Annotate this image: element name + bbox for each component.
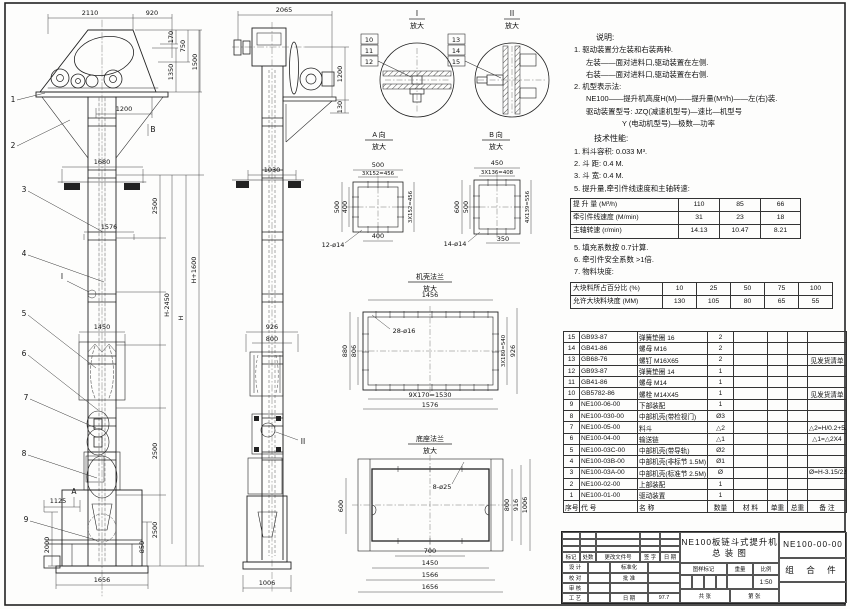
part-name: 中部机壳(带导轨) bbox=[638, 444, 708, 455]
quantity: △2 bbox=[708, 422, 734, 433]
row-no: 9 bbox=[564, 399, 580, 410]
scale-header: 比例 bbox=[753, 563, 779, 575]
title-block: 标记 处数 更改文件号 签 字 日 期 设 计 标准化 校 对 批 准 审 核 … bbox=[561, 531, 846, 604]
quantity: Ø bbox=[708, 467, 734, 478]
rev-header: 日 期 bbox=[660, 552, 680, 562]
role-label: 标准化 bbox=[610, 562, 648, 572]
dim-label: 500 bbox=[372, 161, 384, 169]
part-code: NE100-02-00 bbox=[580, 478, 638, 489]
spec-value: 31 bbox=[679, 212, 720, 225]
material bbox=[734, 478, 768, 489]
balloon-number: 8 bbox=[22, 449, 27, 458]
part-name: 中部机壳(带检视门) bbox=[638, 411, 708, 422]
drawing-title: NE100板链斗式提升机 总 装 图 bbox=[680, 532, 779, 563]
spec-row-label: 牵引件线速度 (M/min) bbox=[571, 212, 679, 225]
rev-header: 签 字 bbox=[640, 552, 660, 562]
spec-row-label: 主轴转速 (r/min) bbox=[571, 225, 679, 238]
dim-label: 1030 bbox=[264, 166, 281, 174]
table-row: 3NE100-03A-00中部机壳(标准节 2.5M)ØØ=H-3.15/2.5 bbox=[564, 467, 847, 478]
dim-label: 500 bbox=[333, 201, 341, 213]
part-name: 弹簧垫圈 16 bbox=[638, 332, 708, 343]
part-code: NE100-06-00 bbox=[580, 399, 638, 410]
drawing-title-line2: 总 装 图 bbox=[712, 548, 747, 559]
table-row: 2NE100-02-00上部装配1 bbox=[564, 478, 847, 489]
role-label: 校 对 bbox=[562, 573, 588, 583]
dim-label: 1576 bbox=[422, 401, 439, 409]
callout-number: 10 bbox=[365, 36, 373, 44]
dim-label: 1450 bbox=[422, 559, 439, 567]
spec-line: 1. 料斗容积: 0.033 M³. bbox=[574, 146, 848, 158]
part-name: 螺钉 M16X65 bbox=[638, 354, 708, 365]
rev-header: 更改文件号 bbox=[596, 552, 640, 562]
unit-weight bbox=[768, 343, 788, 354]
table-row: 9NE100-06-00下部装配1 bbox=[564, 399, 847, 410]
dim-label: 1576 bbox=[101, 223, 118, 231]
spec-value: 50 bbox=[731, 282, 765, 295]
total-weight bbox=[788, 478, 808, 489]
balloon-number: 2 bbox=[11, 141, 16, 150]
quantity: 2 bbox=[708, 354, 734, 365]
part-name: 螺母 M16 bbox=[638, 343, 708, 354]
total-weight bbox=[788, 343, 808, 354]
material bbox=[734, 377, 768, 388]
dim-label: 800 bbox=[266, 335, 278, 343]
col-header: 总重 bbox=[788, 501, 808, 512]
quantity: Ø2 bbox=[708, 444, 734, 455]
total-weight bbox=[788, 444, 808, 455]
row-no: 6 bbox=[564, 433, 580, 444]
unit-weight bbox=[768, 377, 788, 388]
mark-header: 图样标记 bbox=[680, 563, 727, 575]
row-no: 4 bbox=[564, 456, 580, 467]
dim-label: 1566 bbox=[422, 571, 439, 579]
role-label: 批 准 bbox=[610, 573, 648, 583]
dim-label: 1656 bbox=[94, 576, 111, 584]
unit-weight bbox=[768, 478, 788, 489]
specs-heading: 技术性能: bbox=[594, 133, 848, 145]
part-code: GB5782-86 bbox=[580, 388, 638, 399]
balloon-number: 1 bbox=[11, 95, 16, 104]
dim-label: 2500 bbox=[151, 443, 159, 460]
table-row: 14GB41-86螺母 M162 bbox=[564, 343, 847, 354]
part-code: GB93-87 bbox=[580, 332, 638, 343]
sheet-total: 共 张 bbox=[680, 589, 730, 603]
spec-value: 85 bbox=[720, 198, 761, 211]
note-line: NE100——提升机高度H(M)——提升量(M³/h)——左(右)装. bbox=[586, 93, 848, 105]
part-code: GB93-87 bbox=[580, 365, 638, 376]
remark bbox=[808, 343, 847, 354]
balloon-number: 9 bbox=[24, 515, 29, 524]
detail-title: 机壳法兰 bbox=[416, 272, 444, 281]
unit-weight bbox=[768, 444, 788, 455]
dim-label: H+1600 bbox=[190, 257, 198, 284]
parts-table: 15GB93-87弹簧垫圈 16214GB41-86螺母 M16213GB68-… bbox=[563, 331, 847, 513]
quantity: 1 bbox=[708, 399, 734, 410]
spec-line: 5. 填充系数按 0.7计算. bbox=[574, 242, 848, 254]
detail-I: I 放大 10 11 12 bbox=[361, 9, 454, 117]
dim-label: 3X180=540 bbox=[501, 334, 507, 367]
table-row: 12GB93-87弹簧垫圈 141 bbox=[564, 365, 847, 376]
spec-value: 65 bbox=[765, 295, 799, 308]
material bbox=[734, 365, 768, 376]
dim-label: 2110 bbox=[82, 9, 99, 17]
row-no: 12 bbox=[564, 365, 580, 376]
mounting-pad bbox=[124, 183, 140, 190]
row-no: 2 bbox=[564, 478, 580, 489]
total-weight bbox=[788, 399, 808, 410]
table-row: 大块料所占百分比 (%)10255075100 bbox=[571, 282, 833, 295]
dim-label: 700 bbox=[424, 547, 436, 555]
unit-weight bbox=[768, 467, 788, 478]
unit-weight bbox=[768, 422, 788, 433]
dim-label: 1500 bbox=[191, 54, 199, 71]
part-name: 驱动装置 bbox=[638, 490, 708, 501]
front-dimension-labels: 2110 920 170 750 1350 1500 1200 1680 157… bbox=[43, 9, 199, 584]
unit-weight bbox=[768, 365, 788, 376]
detail-subtitle: 放大 bbox=[489, 142, 503, 151]
rev-header: 处数 bbox=[580, 552, 596, 562]
table-row: 15GB93-87弹簧垫圈 162 bbox=[564, 332, 847, 343]
detail-title: A 向 bbox=[372, 130, 385, 139]
remark: Ø=H-3.15/2.5 bbox=[808, 467, 847, 478]
parts-list: 15GB93-87弹簧垫圈 16214GB41-86螺母 M16213GB68-… bbox=[563, 331, 846, 513]
detail-title: I bbox=[416, 9, 418, 18]
part-name: 弹簧垫圈 14 bbox=[638, 365, 708, 376]
unit-weight bbox=[768, 332, 788, 343]
row-no: 13 bbox=[564, 354, 580, 365]
balloon-leaders bbox=[17, 93, 104, 540]
table-row: 牵引件线速度 (M/min)312318 bbox=[571, 212, 801, 225]
drawing-title-line1: NE100板链斗式提升机 bbox=[681, 537, 777, 548]
dim-label: H-2450 bbox=[163, 293, 171, 317]
spec-value: 66 bbox=[761, 198, 801, 211]
dim-label: 400 bbox=[341, 201, 349, 213]
unit-weight bbox=[768, 399, 788, 410]
dim-label: 9X170=1530 bbox=[409, 391, 452, 399]
note-line: 2. 机型表示法: bbox=[574, 81, 848, 93]
material bbox=[734, 411, 768, 422]
dim-label: 3X136=408 bbox=[481, 170, 514, 176]
dim-label: 130 bbox=[336, 101, 344, 113]
spec-line: 5. 提升量,牵引件线速度和主轴转速: bbox=[574, 183, 848, 195]
drawing-number: NE100-00-00 bbox=[779, 532, 847, 558]
table-row: 5NE100-03C-00中部机壳(带导轨)Ø2 bbox=[564, 444, 847, 455]
dim-label: 3X152=456 bbox=[362, 171, 395, 177]
col-header: 数量 bbox=[708, 501, 734, 512]
material bbox=[734, 467, 768, 478]
dim-label: 170 bbox=[167, 31, 175, 43]
part-name: 中部机壳(非标节 1.5M) bbox=[638, 456, 708, 467]
spec-row-label: 允许大块料块度 (MM) bbox=[571, 295, 663, 308]
notes-heading: 说明: bbox=[596, 32, 848, 44]
table-row: 13GB68-76螺钉 M16X652见发货清单 bbox=[564, 354, 847, 365]
table-row: 4NE100-03B-00中部机壳(非标节 1.5M)Ø1 bbox=[564, 456, 847, 467]
callout-number: 11 bbox=[365, 47, 373, 55]
col-header: 代 号 bbox=[580, 501, 638, 512]
table-row: 8NE100-030-00中部机壳(带检视门)Ø3 bbox=[564, 411, 847, 422]
dim-label: 500 bbox=[462, 201, 470, 213]
capacity-table: 提 升 量 (M³/h)1108566牵引件线速度 (M/min)312318主… bbox=[570, 198, 801, 239]
spec-row-label: 大块料所占百分比 (%) bbox=[571, 282, 663, 295]
engineering-drawing-page: 2110 920 170 750 1350 1500 1200 1680 157… bbox=[0, 0, 850, 609]
row-no: 7 bbox=[564, 422, 580, 433]
part-name: 输送链 bbox=[638, 433, 708, 444]
quantity: △1 bbox=[708, 433, 734, 444]
rev-header: 标记 bbox=[562, 552, 580, 562]
col-header: 材 料 bbox=[734, 501, 768, 512]
balloon-number: 5 bbox=[22, 309, 27, 318]
detail-title: II bbox=[510, 9, 514, 18]
col-header: 名 称 bbox=[638, 501, 708, 512]
quantity: 1 bbox=[708, 365, 734, 376]
title-block-revision-area: 标记 处数 更改文件号 签 字 日 期 设 计 标准化 校 对 批 准 审 核 … bbox=[562, 532, 680, 603]
quantity: Ø3 bbox=[708, 411, 734, 422]
note-line: 1. 驱动装置分左装和右装两种. bbox=[574, 44, 848, 56]
quantity: 2 bbox=[708, 332, 734, 343]
table-row: 11GB41-86螺母 M141 bbox=[564, 377, 847, 388]
dim-label: 1006 bbox=[521, 497, 529, 514]
dim-label: 3X152=456 bbox=[408, 190, 414, 223]
part-code: NE100-05-00 bbox=[580, 422, 638, 433]
quantity: Ø1 bbox=[708, 456, 734, 467]
row-no: 11 bbox=[564, 377, 580, 388]
dim-label: 450 bbox=[491, 159, 503, 167]
total-weight bbox=[788, 388, 808, 399]
dim-label: 880 bbox=[341, 345, 349, 357]
detail-subtitle: 放大 bbox=[505, 21, 519, 30]
row-no: 1 bbox=[564, 490, 580, 501]
title-block-right: NE100-00-00 组 合 件 bbox=[779, 532, 847, 603]
dim-label: 2500 bbox=[151, 198, 159, 215]
remark bbox=[808, 365, 847, 376]
view-A-detail: A 向 放大 500 3X152=456 500 400 3X152=456 4… bbox=[322, 130, 414, 249]
spec-line: 3. 斗 宽: 0.4 M. bbox=[574, 170, 848, 182]
spec-value: 80 bbox=[731, 295, 765, 308]
material bbox=[734, 444, 768, 455]
spec-value: 14.13 bbox=[679, 225, 720, 238]
table-row: 主轴转速 (r/min)14.1310.478.21 bbox=[571, 225, 801, 238]
dim-label: 1200 bbox=[116, 105, 133, 113]
total-weight bbox=[788, 456, 808, 467]
row-no: 5 bbox=[564, 444, 580, 455]
row-no: 10 bbox=[564, 388, 580, 399]
dim-label: 2000 bbox=[43, 537, 51, 554]
note-line: Y (电动机型号)—极数—功率 bbox=[622, 118, 848, 130]
material bbox=[734, 456, 768, 467]
total-weight bbox=[788, 422, 808, 433]
drive-housing bbox=[71, 31, 138, 81]
dim-label: H bbox=[177, 315, 185, 320]
dim-label: 1450 bbox=[94, 323, 111, 331]
spec-value: 10.47 bbox=[720, 225, 761, 238]
dim-label: 1680 bbox=[94, 158, 111, 166]
detail-II: II 放大 13 14 15 bbox=[448, 9, 549, 117]
callout-number: 12 bbox=[365, 58, 373, 66]
detail-subtitle: 放大 bbox=[410, 21, 424, 30]
part-code: GB68-76 bbox=[580, 354, 638, 365]
dim-label: 1200 bbox=[336, 66, 344, 83]
spec-value: 100 bbox=[799, 282, 833, 295]
col-header: 序号 bbox=[564, 501, 580, 512]
material bbox=[734, 354, 768, 365]
dim-label: 2065 bbox=[276, 6, 293, 14]
part-code: NE100-03B-00 bbox=[580, 456, 638, 467]
side-dimensions bbox=[238, 11, 349, 592]
spec-value: 8.21 bbox=[761, 225, 801, 238]
spec-value: 25 bbox=[697, 282, 731, 295]
detail-title: 底座法兰 bbox=[416, 434, 444, 443]
total-weight bbox=[788, 377, 808, 388]
total-weight bbox=[788, 365, 808, 376]
unit-weight bbox=[768, 490, 788, 501]
weight-header: 重量 bbox=[727, 563, 753, 575]
spec-value: 23 bbox=[720, 212, 761, 225]
dim-label: 2500 bbox=[151, 522, 159, 539]
remark: 见发货清单 bbox=[808, 354, 847, 365]
quantity: 1 bbox=[708, 490, 734, 501]
hole-callout: 8-ø25 bbox=[433, 483, 452, 491]
hole-callout: 14-ø14 bbox=[444, 240, 467, 248]
dim-label: 916 bbox=[512, 499, 520, 511]
detail-marker: I bbox=[61, 272, 63, 281]
total-weight bbox=[788, 332, 808, 343]
parts-header-row: 序号 代 号 名 称 数量 材 料 单重 总重 备 注 bbox=[564, 501, 847, 512]
dim-label: 920 bbox=[146, 9, 158, 17]
remark bbox=[808, 456, 847, 467]
callout-number: 15 bbox=[452, 58, 460, 66]
table-row: 7NE100-05-00料斗△2△2=H/0.2+5.75 bbox=[564, 422, 847, 433]
remark bbox=[808, 399, 847, 410]
part-code: NE100-01-00 bbox=[580, 490, 638, 501]
view-marker: A bbox=[71, 487, 77, 496]
spec-row-label: 提 升 量 (M³/h) bbox=[571, 198, 679, 211]
part-name: 上部装配 bbox=[638, 478, 708, 489]
quantity: 1 bbox=[708, 377, 734, 388]
detail-subtitle: 放大 bbox=[372, 142, 386, 151]
spec-line: 7. 物料块度: bbox=[574, 266, 848, 278]
part-name: 螺栓 M14X45 bbox=[638, 388, 708, 399]
sheet-number: 第 张 bbox=[730, 589, 780, 603]
remark: 见发货清单 bbox=[808, 388, 847, 399]
front-view bbox=[36, 20, 168, 596]
dim-label: 1006 bbox=[259, 579, 276, 587]
lump-size-table: 大块料所占百分比 (%)10255075100允许大块料块度 (MM)13010… bbox=[570, 282, 833, 310]
unit-weight bbox=[768, 433, 788, 444]
part-name: 下部装配 bbox=[638, 399, 708, 410]
quantity: 1 bbox=[708, 478, 734, 489]
balloon-number: 6 bbox=[22, 349, 27, 358]
dim-label: 926 bbox=[509, 345, 517, 357]
remark bbox=[808, 478, 847, 489]
note-line: 驱动装置型号: JZQ(减速机型号)—速比—机型号 bbox=[586, 106, 848, 118]
spec-value: 75 bbox=[765, 282, 799, 295]
remark bbox=[808, 377, 847, 388]
part-code: GB41-86 bbox=[580, 377, 638, 388]
material bbox=[734, 388, 768, 399]
scale-value: 1:50 bbox=[753, 575, 779, 590]
dim-label: 1456 bbox=[422, 291, 439, 299]
col-header: 单重 bbox=[768, 501, 788, 512]
row-no: 14 bbox=[564, 343, 580, 354]
component-type: 组 合 件 bbox=[779, 558, 847, 583]
total-weight bbox=[788, 433, 808, 444]
dim-label: 4X139=556 bbox=[525, 190, 531, 223]
side-dimension-labels: 2065 1200 130 1030 926 800 1006 II bbox=[259, 6, 344, 587]
detail-marker: II bbox=[301, 437, 305, 446]
spec-value: 55 bbox=[799, 295, 833, 308]
callout-number: 14 bbox=[452, 47, 460, 55]
part-code: NE100-03A-00 bbox=[580, 467, 638, 478]
row-no: 15 bbox=[564, 332, 580, 343]
dim-label: 600 bbox=[453, 201, 461, 213]
role-label: 设 计 bbox=[562, 562, 588, 572]
remark bbox=[808, 332, 847, 343]
remark bbox=[808, 444, 847, 455]
note-line: 左装——面对进料口,驱动装置在左侧. bbox=[586, 57, 848, 69]
callout-number: 13 bbox=[452, 36, 460, 44]
material bbox=[734, 332, 768, 343]
part-code: NE100-03C-00 bbox=[580, 444, 638, 455]
table-row: 提 升 量 (M³/h)1108566 bbox=[571, 198, 801, 211]
table-row: 允许大块料块度 (MM)130105806555 bbox=[571, 295, 833, 308]
spec-value: 10 bbox=[663, 282, 697, 295]
quantity: 2 bbox=[708, 343, 734, 354]
role-label: 审 核 bbox=[562, 583, 588, 593]
total-weight bbox=[788, 354, 808, 365]
spec-line: 2. 斗 距: 0.4 M. bbox=[574, 158, 848, 170]
spec-line: 6. 牵引件安全系数 >1倍. bbox=[574, 254, 848, 266]
table-row: 6NE100-04-00输送链△1△1=△2X4 bbox=[564, 433, 847, 444]
dim-label: 806 bbox=[350, 345, 358, 357]
balloon-number: 3 bbox=[22, 185, 27, 194]
mounting-pad bbox=[64, 183, 80, 190]
material bbox=[734, 343, 768, 354]
material bbox=[734, 422, 768, 433]
role-label: 日 期 bbox=[610, 593, 648, 603]
drawing-date: 97.7 bbox=[648, 593, 680, 603]
remark bbox=[808, 411, 847, 422]
detail-title: B 向 bbox=[489, 130, 503, 139]
title-block-center: NE100板链斗式提升机 总 装 图 图样标记 重量 比例 1:50 共 张 第… bbox=[680, 532, 779, 603]
remark: △2=H/0.2+5.75 bbox=[808, 422, 847, 433]
col-header: 备 注 bbox=[808, 501, 847, 512]
dim-label: 400 bbox=[372, 232, 384, 240]
platform bbox=[283, 97, 336, 101]
part-name: 料斗 bbox=[638, 422, 708, 433]
remark: △1=△2X4 bbox=[808, 433, 847, 444]
dim-label: 350 bbox=[497, 235, 509, 243]
material bbox=[734, 433, 768, 444]
role-label: 工 艺 bbox=[562, 593, 588, 603]
total-weight bbox=[788, 411, 808, 422]
unit-weight bbox=[768, 388, 788, 399]
spec-value: 105 bbox=[697, 295, 731, 308]
front-dimensions bbox=[44, 14, 204, 589]
dim-label: 600 bbox=[337, 500, 345, 512]
backstop-disc bbox=[290, 42, 299, 94]
table-row: 1NE100-01-00驱动装置1 bbox=[564, 490, 847, 501]
material bbox=[734, 399, 768, 410]
notes-panel: 说明: 1. 驱动装置分左装和右装两种. 左装——面对进料口,驱动装置在左侧. … bbox=[566, 32, 848, 312]
quantity: 1 bbox=[708, 388, 734, 399]
dim-label: 926 bbox=[266, 323, 278, 331]
dim-label: 800 bbox=[503, 499, 511, 511]
view-B-detail: B 向 放大 450 3X136=408 600 500 4X139=556 3… bbox=[444, 130, 531, 248]
part-name: 螺母 M14 bbox=[638, 377, 708, 388]
casing-flange-detail: 机壳法兰 放大 1456 880 806 3X180=540 926 9 bbox=[341, 272, 517, 409]
spec-value: 130 bbox=[663, 295, 697, 308]
unit-weight bbox=[768, 354, 788, 365]
